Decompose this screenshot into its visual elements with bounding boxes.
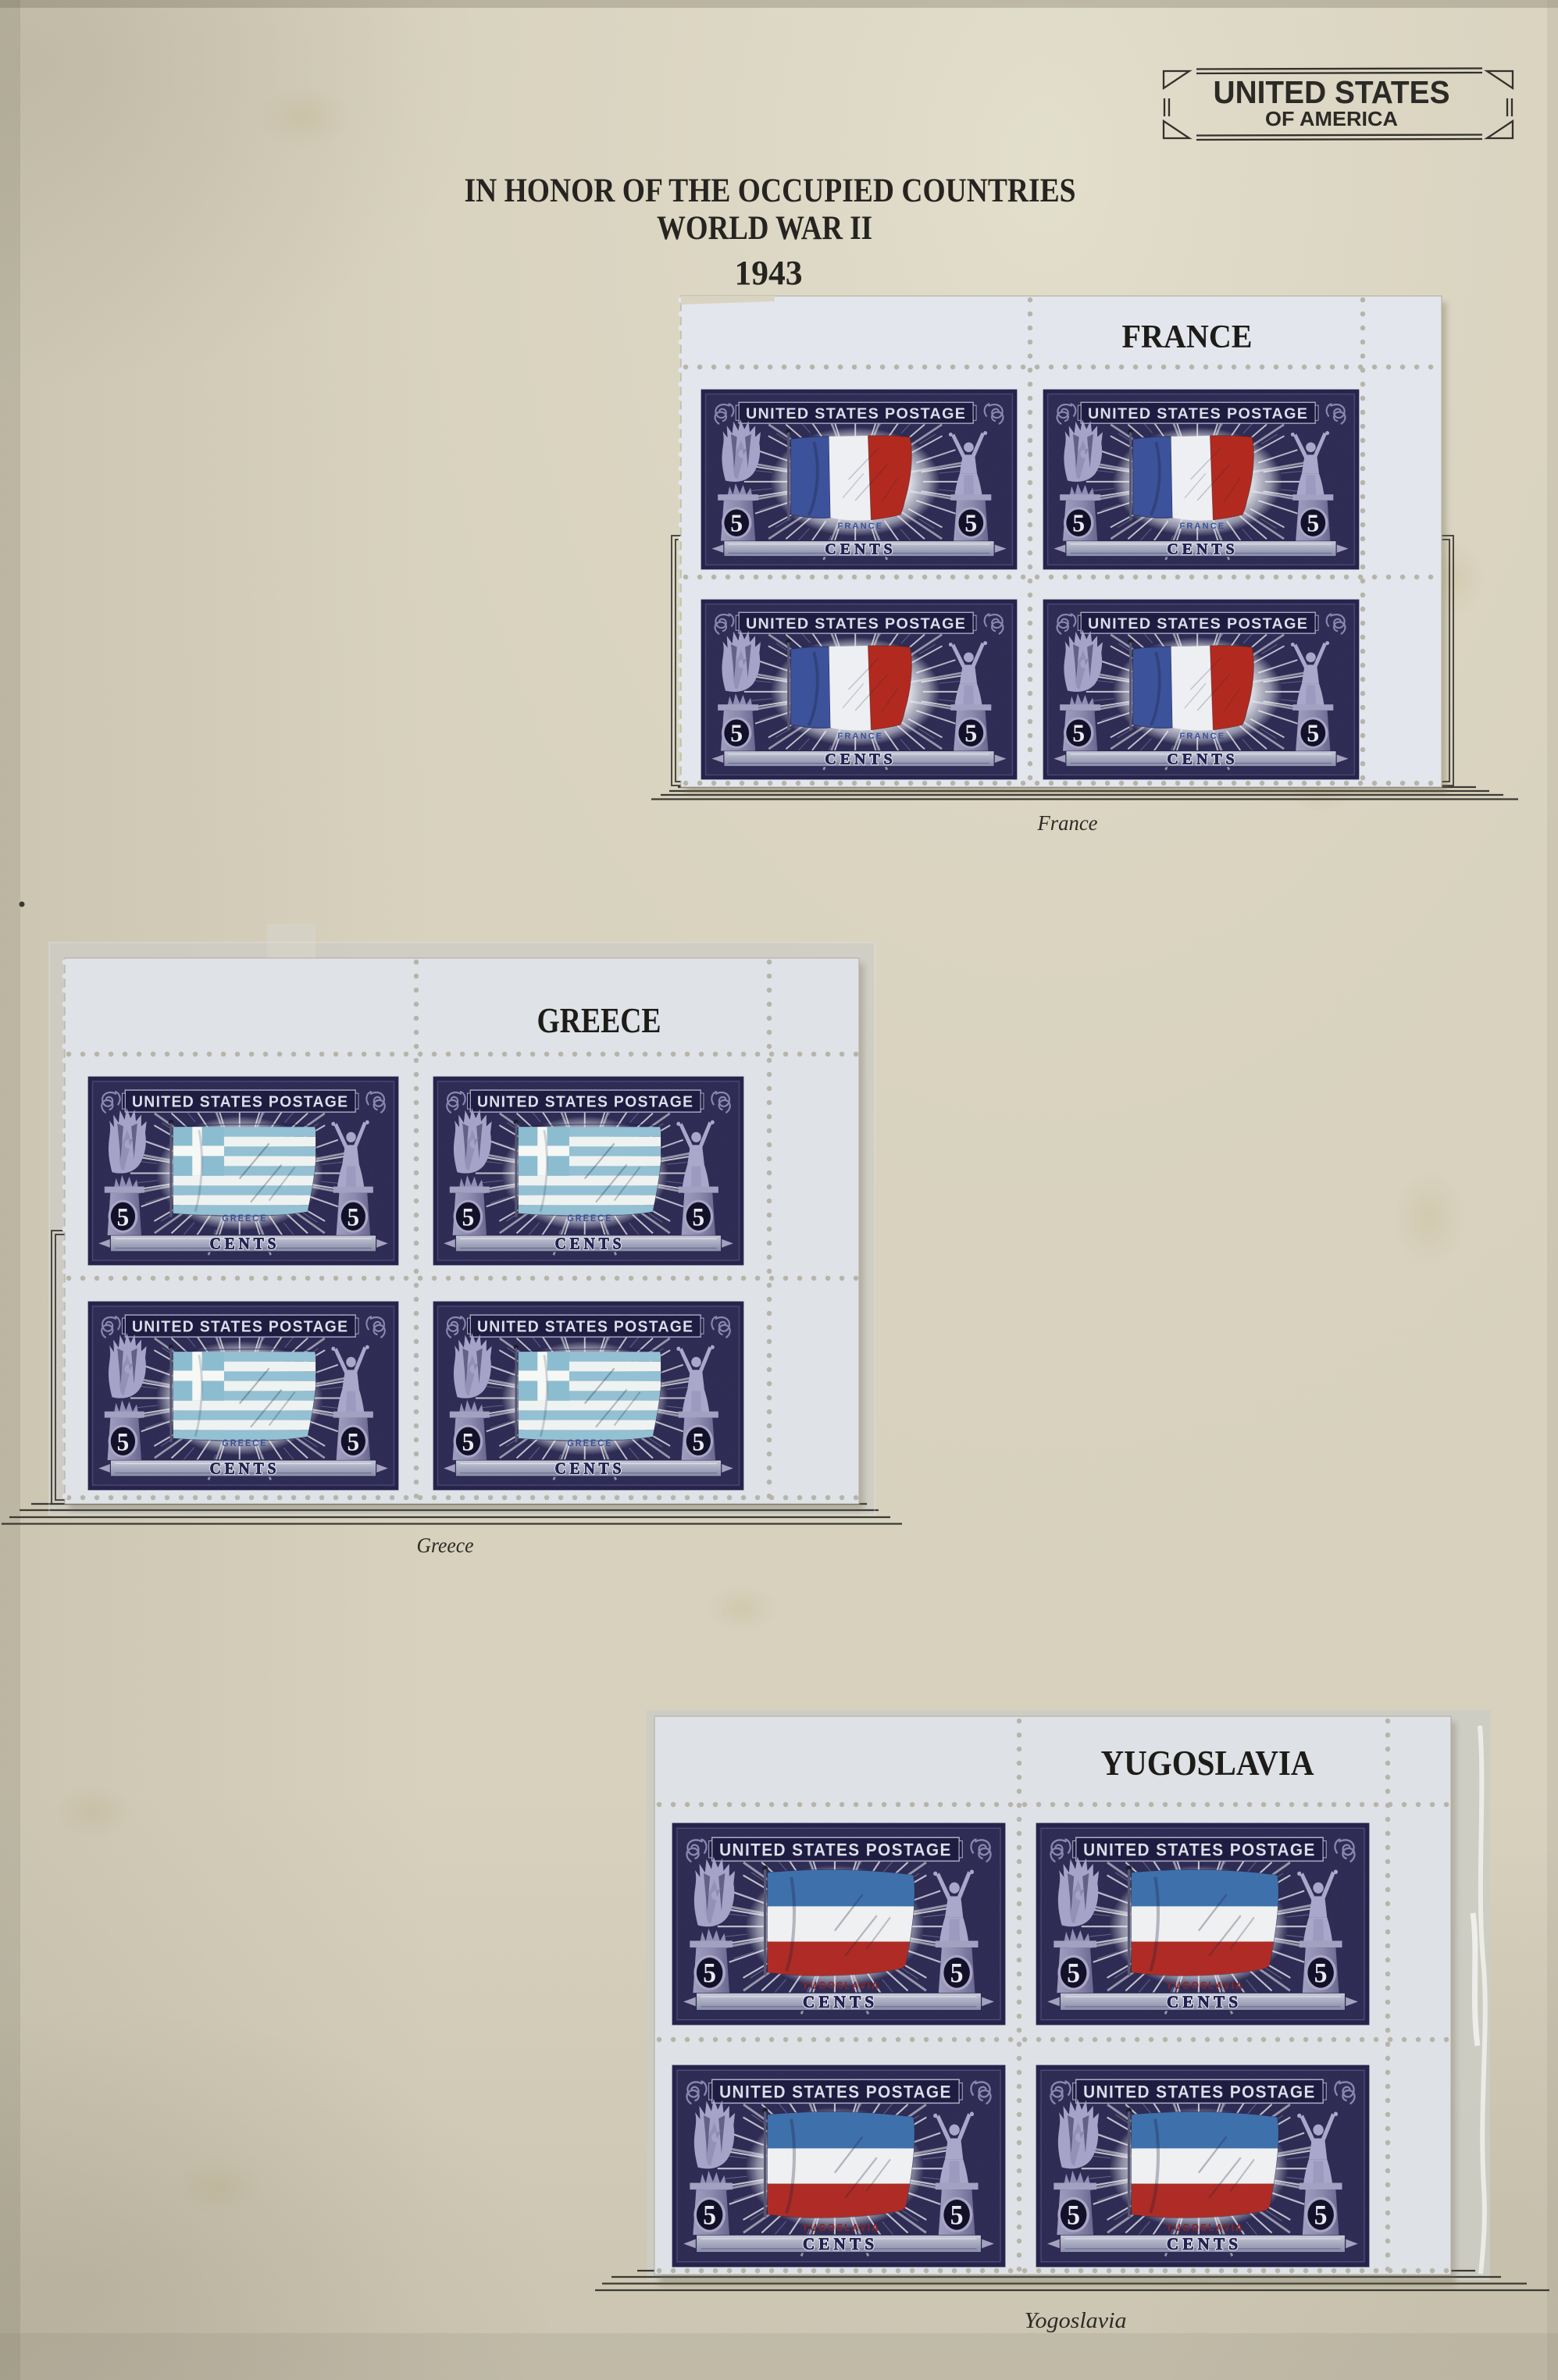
svg-text:GREECE: GREECE [537, 1001, 661, 1040]
svg-text:France: France [1037, 811, 1098, 835]
svg-text:IN HONOR OF THE OCCUPIED COUNT: IN HONOR OF THE OCCUPIED COUNTRIES [465, 173, 1076, 209]
svg-text:1943: 1943 [735, 254, 803, 292]
svg-text:WORLD WAR II: WORLD WAR II [657, 210, 872, 247]
svg-text:UNITED STATES: UNITED STATES [1214, 74, 1450, 110]
svg-text:Yogoslavia: Yogoslavia [1025, 2308, 1127, 2333]
svg-text:OF AMERICA: OF AMERICA [1265, 107, 1398, 130]
svg-text:FRANCE: FRANCE [1122, 319, 1253, 355]
svg-text:Greece: Greece [417, 1534, 474, 1557]
svg-text:YUGOSLAVIA: YUGOSLAVIA [1101, 1743, 1314, 1783]
